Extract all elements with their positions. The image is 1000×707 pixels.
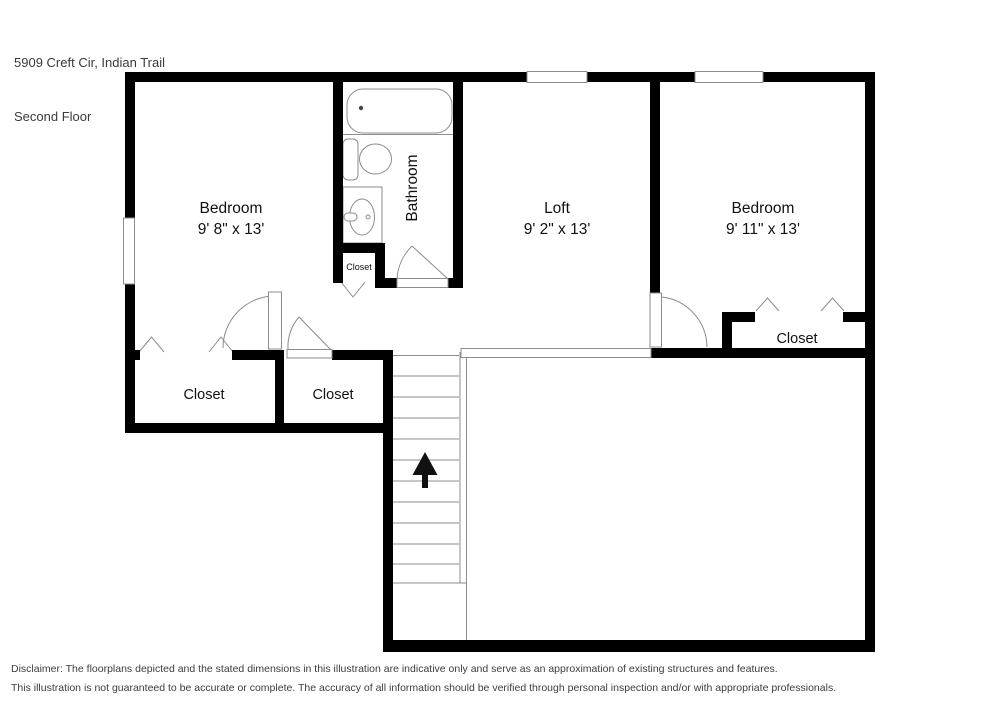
- wall-bathroom-bottom: [333, 243, 385, 253]
- staircase: [393, 352, 467, 640]
- bedroom-left-dimensions: 9' 8" x 13': [198, 221, 265, 238]
- wall-bedroom-right-closet-top-right: [843, 312, 875, 322]
- walls: [125, 72, 875, 652]
- wall-right: [865, 72, 875, 652]
- stairs-up-arrow-icon: [413, 452, 438, 488]
- bedroom-right-door-leaf: [650, 293, 662, 347]
- wall-closets-bottom: [125, 423, 393, 433]
- wall-stair-left: [383, 350, 393, 652]
- closet-opening-chevron-icon: [821, 298, 844, 311]
- bathtub-icon: [347, 89, 452, 133]
- closet-opening-chevron-icon: [756, 298, 779, 311]
- closet-opening-chevron-icon: [139, 337, 164, 352]
- hall-closet-door: [288, 317, 331, 350]
- bedroom-left-door-arc: [223, 296, 275, 348]
- bathroom-threshold: [397, 279, 448, 288]
- bathtub-faucet-icon: [359, 106, 363, 110]
- wall-bedroom-left-bottom: [232, 350, 275, 360]
- bedroom-left-label: Bedroom: [200, 200, 263, 217]
- loft-dimensions: 9' 2" x 13': [524, 221, 591, 238]
- bedroom-right-dimensions: 9' 11" x 13': [726, 221, 800, 238]
- closet-opening-chevron-icon: [341, 282, 365, 297]
- loft-label: Loft: [544, 200, 571, 217]
- bathroom-door: [397, 246, 448, 279]
- sink-faucet-icon: [344, 213, 357, 221]
- floorplan-drawing: Bedroom 9' 8" x 13' Loft 9' 2" x 13' Bed…: [0, 0, 1000, 707]
- wall-bottom: [383, 640, 875, 652]
- floorplan-page: 5909 Creft Cir, Indian Trail Second Floo…: [0, 0, 1000, 707]
- wall-bathroom-door-left-jamb: [375, 278, 397, 288]
- wall-open-room-top: [650, 348, 875, 358]
- closet-opening-chevron-icon: [209, 337, 233, 352]
- wall-closet-divider: [275, 350, 284, 433]
- bedroom-right-door-arc: [662, 297, 707, 347]
- toilet-bowl-icon: [360, 144, 392, 174]
- bedroom-right-closet-label: Closet: [776, 331, 817, 347]
- wall-bedroom-left-bottom-stub: [125, 350, 140, 360]
- wall-bathroom-loft: [453, 72, 463, 288]
- hall-closet-threshold: [287, 350, 332, 359]
- bedroom-right-label: Bedroom: [732, 200, 795, 217]
- wall-bathroom-door-right-jamb: [448, 278, 463, 288]
- hall-closet-label: Closet: [312, 387, 353, 403]
- bathroom-closet-label: Closet: [346, 262, 372, 272]
- window-bedroom-right-icon: [695, 72, 763, 83]
- loft-railing: [461, 349, 651, 358]
- bathroom-fixtures: [343, 89, 453, 243]
- bedroom-left-closet-label: Closet: [183, 387, 224, 403]
- wall-hall-bottom: [332, 350, 393, 360]
- wall-loft-bedroom: [650, 72, 660, 295]
- toilet-tank-icon: [343, 139, 358, 180]
- doors: [223, 246, 707, 350]
- disclaimer: Disclaimer: The floorplans depicted and …: [11, 660, 836, 698]
- window-left-icon: [124, 218, 135, 284]
- disclaimer-line-1: Disclaimer: The floorplans depicted and …: [11, 660, 836, 679]
- window-loft-icon: [527, 72, 587, 83]
- wall-bedroom-right-closet-top-left: [722, 312, 755, 322]
- bathroom-label: Bathroom: [404, 154, 421, 221]
- disclaimer-line-2: This illustration is not guaranteed to b…: [11, 679, 836, 698]
- bedroom-left-door-leaf: [269, 292, 282, 349]
